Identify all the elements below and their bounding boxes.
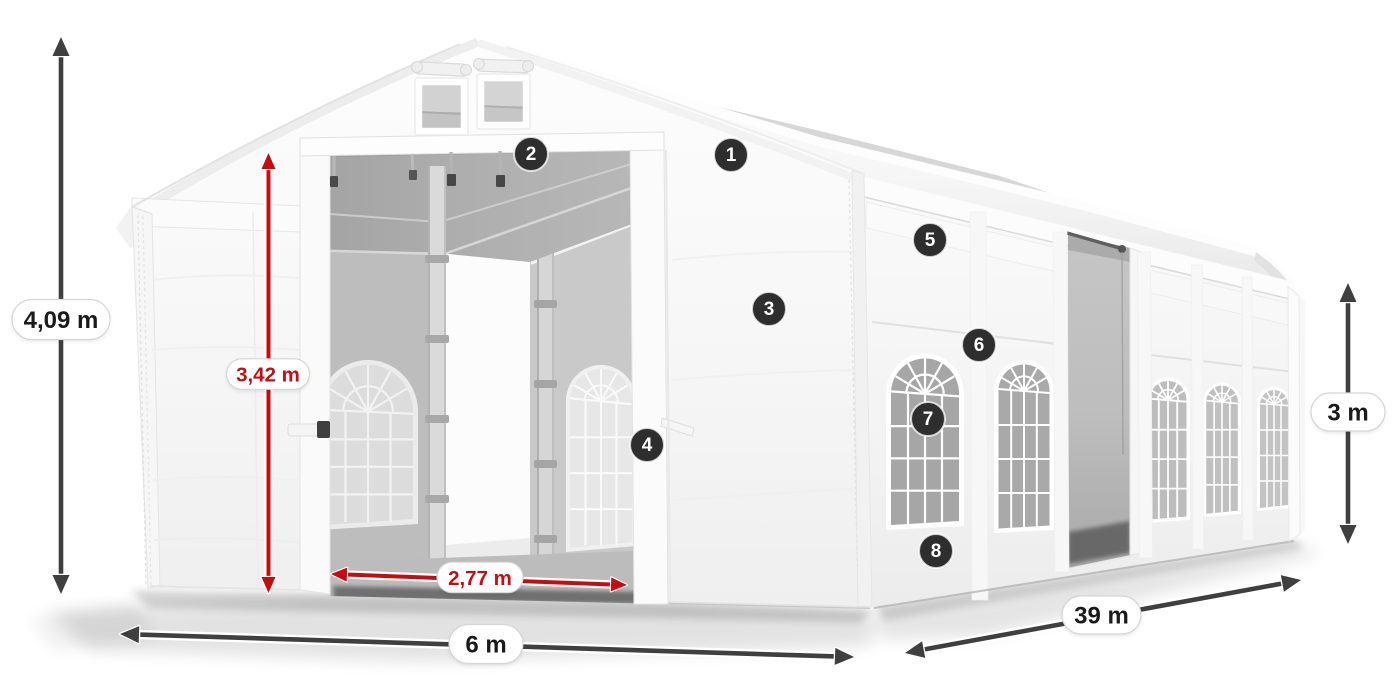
- svg-text:7: 7: [923, 409, 934, 430]
- svg-text:39 m: 39 m: [1074, 603, 1129, 630]
- svg-text:6 m: 6 m: [465, 632, 506, 659]
- svg-text:3 m: 3 m: [1327, 400, 1368, 427]
- svg-text:2,77 m: 2,77 m: [448, 567, 512, 590]
- svg-text:1: 1: [726, 145, 737, 166]
- svg-text:5: 5: [925, 230, 936, 251]
- svg-text:4: 4: [642, 435, 653, 456]
- svg-text:3: 3: [764, 299, 775, 320]
- svg-text:6: 6: [974, 335, 985, 356]
- svg-text:4,09 m: 4,09 m: [24, 307, 99, 334]
- svg-text:2: 2: [526, 144, 537, 165]
- svg-text:8: 8: [931, 541, 942, 562]
- svg-text:3,42 m: 3,42 m: [236, 364, 300, 387]
